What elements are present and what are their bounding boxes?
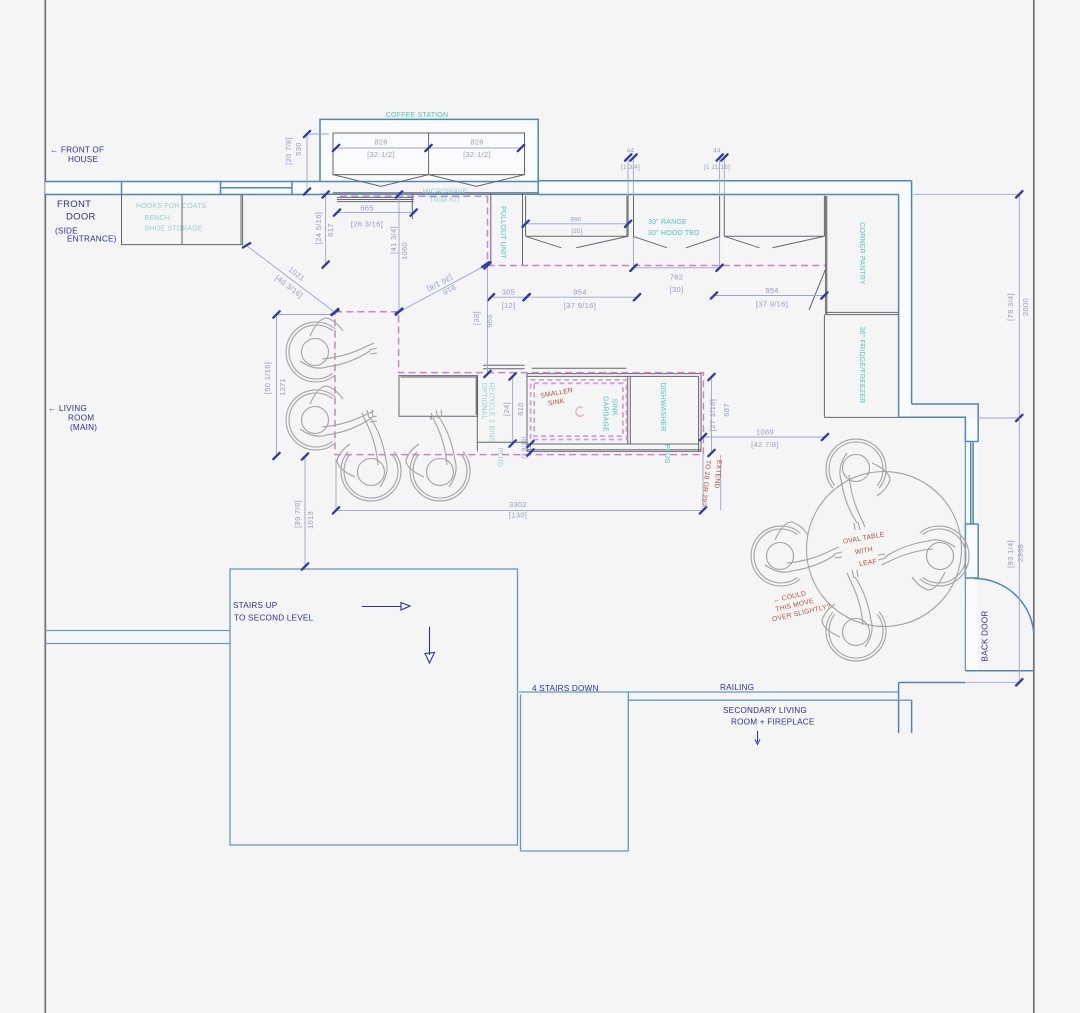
svg-text:PLUG: PLUG — [496, 448, 503, 468]
svg-text:PULLOUT UNIT: PULLOUT UNIT — [499, 206, 506, 259]
svg-text:FRONT: FRONT — [57, 199, 91, 210]
svg-text:[35]: [35] — [571, 228, 582, 235]
svg-text:OPTIONAL: OPTIONAL — [480, 383, 487, 420]
svg-text:617: 617 — [326, 223, 335, 237]
svg-text:762: 762 — [670, 273, 684, 282]
svg-text:[50 1/16]: [50 1/16] — [263, 362, 272, 394]
svg-text:[38]: [38] — [472, 311, 481, 325]
svg-text:ENTRANCE): ENTRANCE) — [67, 235, 117, 244]
svg-text:COFFEE STATION: COFFEE STATION — [386, 112, 448, 119]
svg-text:[32 1/2]: [32 1/2] — [463, 150, 491, 159]
svg-text:MICROWAVE: MICROWAVE — [423, 189, 468, 196]
svg-text:2000: 2000 — [1021, 298, 1030, 316]
svg-text:[32 1/2]: [32 1/2] — [367, 150, 395, 159]
svg-text:30" HOOD TBD: 30" HOOD TBD — [648, 230, 699, 237]
svg-text:[26 3/16]: [26 3/16] — [351, 220, 383, 229]
svg-text:[78 3/4]: [78 3/4] — [1006, 293, 1015, 321]
svg-text:30" RANGE: 30" RANGE — [648, 219, 687, 226]
svg-text:[1 3/4]: [1 3/4] — [621, 164, 640, 171]
svg-text:ROOM + FIREPLACE: ROOM + FIREPLACE — [731, 718, 815, 727]
svg-text:44: 44 — [627, 148, 635, 155]
svg-text:RAILING: RAILING — [720, 683, 754, 692]
svg-text:[30]: [30] — [670, 285, 684, 294]
svg-text:1013: 1013 — [306, 511, 315, 529]
svg-text:HOOKS FOR COATS: HOOKS FOR COATS — [136, 203, 207, 210]
svg-text:RECYCLE 2 BINS: RECYCLE 2 BINS — [488, 383, 495, 443]
svg-text:610: 610 — [516, 402, 525, 416]
svg-text:DISHWASHER: DISHWASHER — [659, 382, 666, 431]
svg-text:890: 890 — [570, 217, 581, 224]
svg-text:CORNER PANTRY: CORNER PANTRY — [858, 222, 865, 285]
svg-text:965: 965 — [485, 314, 494, 328]
svg-text:954: 954 — [765, 286, 779, 295]
svg-text:BACK DOOR: BACK DOOR — [981, 611, 990, 662]
svg-text:2369: 2369 — [1016, 544, 1025, 562]
svg-text:[24]: [24] — [502, 402, 511, 416]
svg-text:36" FRIDGE/FREEZER: 36" FRIDGE/FREEZER — [858, 327, 865, 404]
svg-text:665: 665 — [360, 204, 374, 213]
svg-text:[37 9/16]: [37 9/16] — [564, 301, 596, 310]
svg-text:← FRONT OF: ← FRONT OF — [50, 146, 104, 155]
svg-text:[3 9/16]: [3 9/16] — [521, 436, 528, 459]
svg-text:DOOR: DOOR — [66, 212, 96, 223]
svg-text:3302: 3302 — [509, 500, 527, 509]
svg-text:PLUG: PLUG — [663, 444, 670, 464]
svg-text:ROOM: ROOM — [68, 414, 94, 423]
svg-text:GARBAGE: GARBAGE — [602, 396, 609, 432]
svg-text:STAIRS UP: STAIRS UP — [233, 601, 278, 610]
svg-text:1271: 1271 — [278, 378, 287, 396]
svg-text:(MAIN): (MAIN) — [70, 423, 97, 432]
svg-text:[1 11/16]: [1 11/16] — [704, 164, 730, 171]
svg-text:[93 1/4]: [93 1/4] — [1006, 540, 1015, 568]
svg-text:1089: 1089 — [756, 428, 774, 437]
svg-text:687: 687 — [722, 403, 731, 417]
svg-text:[42 7/8]: [42 7/8] — [751, 440, 779, 449]
svg-text:SECONDARY LIVING: SECONDARY LIVING — [723, 706, 807, 715]
svg-text:[20 7/8]: [20 7/8] — [284, 137, 293, 165]
svg-text:305: 305 — [502, 288, 516, 297]
svg-text:[130]: [130] — [509, 511, 527, 520]
svg-text:SINK: SINK — [611, 398, 618, 415]
svg-text:← LIVING: ← LIVING — [48, 404, 87, 413]
svg-text:530: 530 — [294, 142, 303, 156]
svg-text:954: 954 — [573, 288, 587, 297]
svg-text:SHOE STORAGE: SHOE STORAGE — [145, 226, 203, 233]
svg-text:1060: 1060 — [400, 242, 409, 260]
svg-text:4 STAIRS DOWN: 4 STAIRS DOWN — [532, 684, 599, 693]
svg-text:[39 7/8]: [39 7/8] — [293, 500, 302, 528]
svg-text:44: 44 — [713, 148, 721, 155]
svg-text:HOUSE: HOUSE — [68, 155, 98, 164]
svg-text:[12]: [12] — [502, 301, 516, 310]
svg-text:BENCH: BENCH — [145, 215, 171, 222]
svg-text:[37 9/16]: [37 9/16] — [756, 300, 788, 309]
svg-text:TRIM KIT: TRIM KIT — [429, 197, 461, 204]
svg-text:TO SECOND LEVEL: TO SECOND LEVEL — [234, 614, 314, 623]
svg-text:826: 826 — [470, 138, 484, 147]
svg-text:826: 826 — [374, 138, 388, 147]
svg-text:[41 3/4]: [41 3/4] — [389, 226, 398, 254]
svg-text:[24 5/16]: [24 5/16] — [314, 212, 323, 244]
svg-text:[27 1/16]: [27 1/16] — [708, 399, 717, 431]
